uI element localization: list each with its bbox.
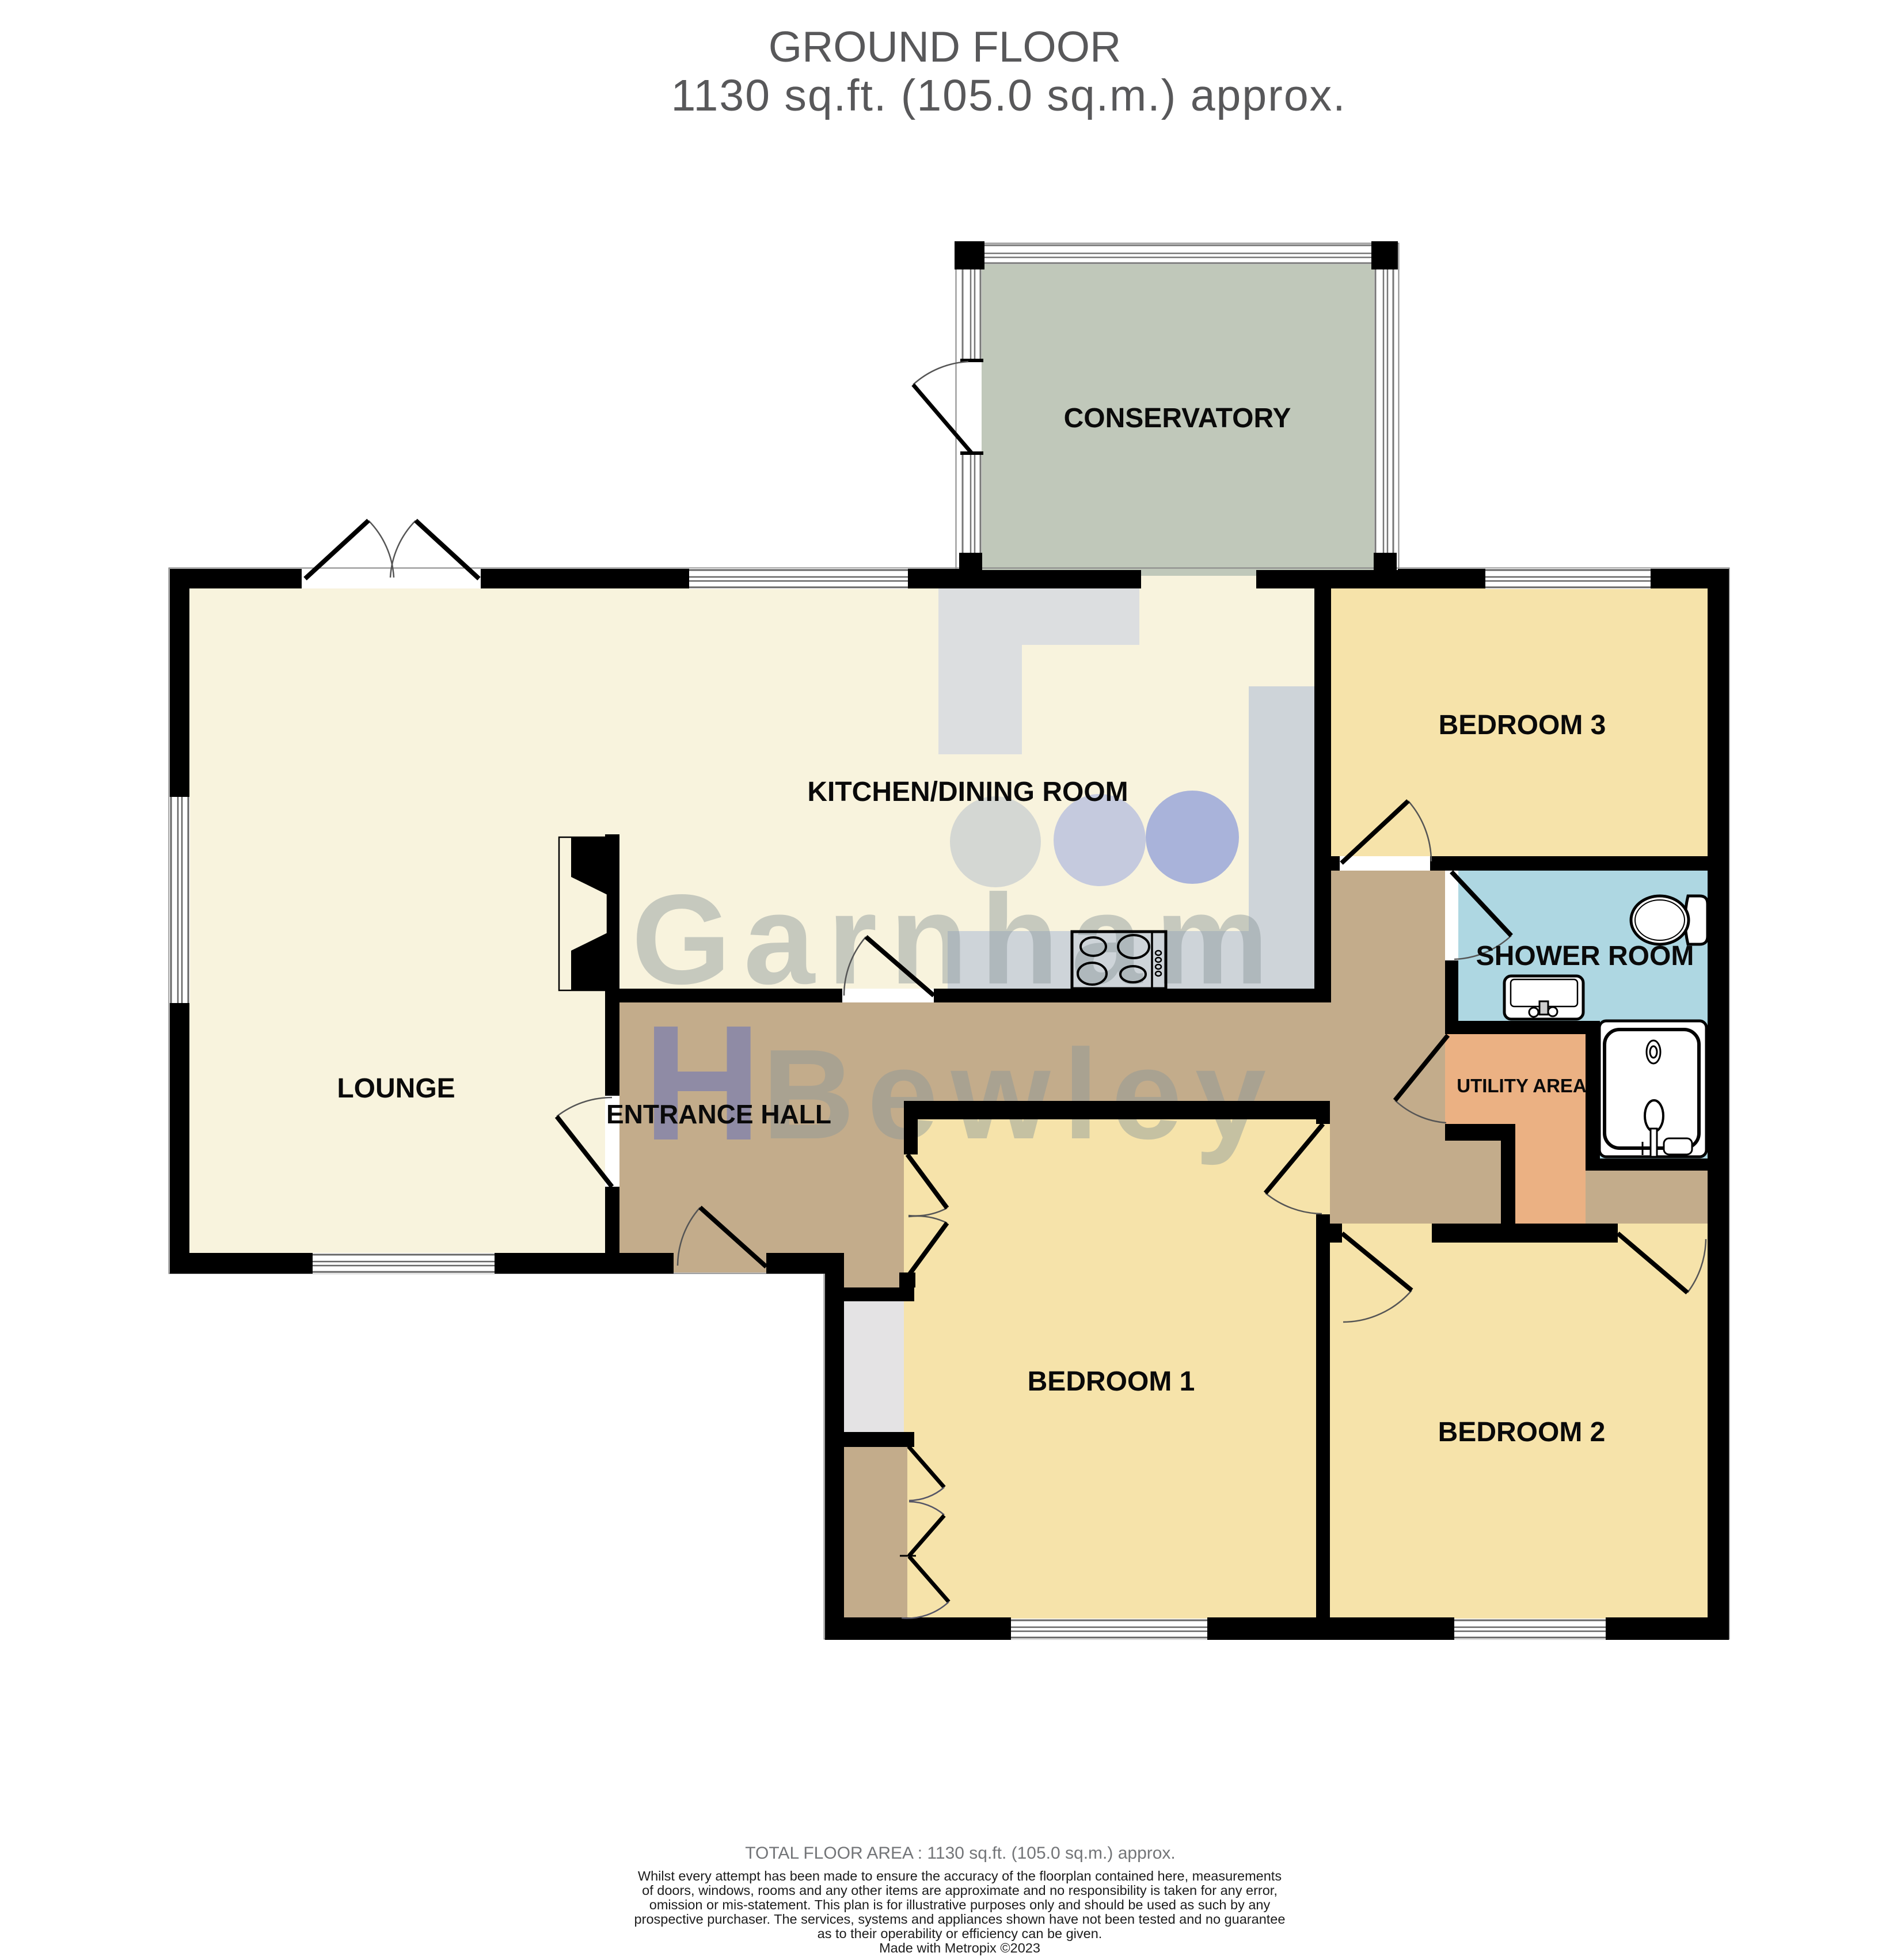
svg-text:BEDROOM 1: BEDROOM 1 — [1028, 1366, 1195, 1397]
svg-text:TOTAL FLOOR AREA : 1130 sq.ft.: TOTAL FLOOR AREA : 1130 sq.ft. (105.0 sq… — [745, 1844, 1176, 1863]
svg-text:Bewley: Bewley — [762, 1023, 1279, 1166]
svg-text:Whilst every attempt has been: Whilst every attempt has been made to en… — [638, 1868, 1282, 1883]
svg-text:ENTRANCE HALL: ENTRANCE HALL — [606, 1099, 831, 1129]
svg-text:CONSERVATORY: CONSERVATORY — [1064, 403, 1291, 434]
svg-text:BEDROOM 3: BEDROOM 3 — [1439, 710, 1606, 740]
svg-text:BEDROOM 2: BEDROOM 2 — [1438, 1417, 1606, 1448]
svg-text:SHOWER ROOM: SHOWER ROOM — [1476, 941, 1694, 971]
svg-text:GROUND FLOOR: GROUND FLOOR — [769, 22, 1122, 71]
svg-text:UTILITY AREA: UTILITY AREA — [1457, 1075, 1587, 1096]
svg-text:H: H — [643, 992, 762, 1175]
svg-text:prospective purchaser. The ser: prospective purchaser. The services, sys… — [634, 1912, 1286, 1927]
svg-text:LOUNGE: LOUNGE — [337, 1073, 455, 1104]
svg-text:KITCHEN/DINING ROOM: KITCHEN/DINING ROOM — [807, 777, 1128, 807]
svg-text:of doors, windows, rooms and a: of doors, windows, rooms and any other i… — [642, 1883, 1278, 1898]
svg-text:omission or mis-statement. Thi: omission or mis-statement. This plan is … — [649, 1897, 1271, 1912]
svg-text:Made with Metropix ©2023: Made with Metropix ©2023 — [879, 1940, 1040, 1955]
svg-text:as to their operability or eff: as to their operability or efficiency ca… — [818, 1926, 1103, 1941]
svg-text:1130 sq.ft. (105.0 sq.m.) appr: 1130 sq.ft. (105.0 sq.m.) approx. — [671, 71, 1346, 120]
